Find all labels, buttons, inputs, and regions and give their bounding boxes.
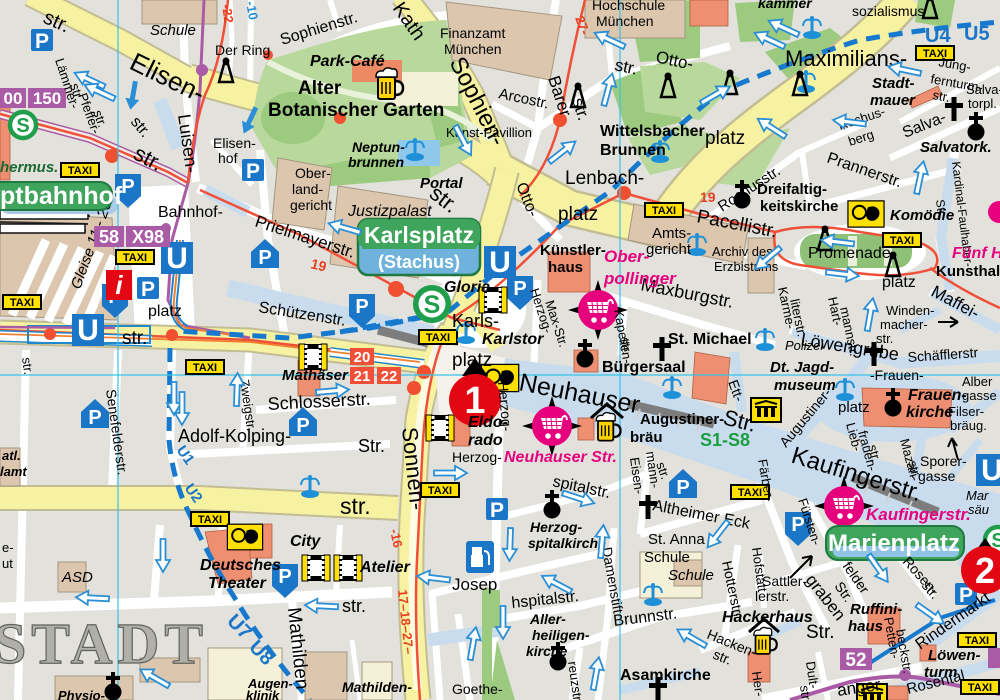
svg-text:München: München	[596, 13, 654, 29]
svg-text:Schule: Schule	[150, 22, 196, 39]
svg-text:atl.: atl.	[2, 448, 21, 463]
svg-text:00: 00	[4, 89, 23, 108]
svg-text:bräu: bräu	[630, 429, 663, 446]
svg-text:Wittelsbacher: Wittelsbacher	[600, 123, 705, 140]
svg-text:Dt. Jagd-: Dt. Jagd-	[770, 359, 834, 376]
svg-text:lamt: lamt	[0, 464, 27, 479]
svg-text:Finanzamt: Finanzamt	[440, 25, 505, 41]
svg-text:Polizei: Polizei	[785, 338, 824, 353]
svg-text:Ober-: Ober-	[604, 247, 650, 266]
svg-text:haus: haus	[548, 259, 583, 276]
svg-text:Mathilden-: Mathilden-	[342, 679, 412, 695]
svg-text:Der Ring: Der Ring	[215, 42, 270, 58]
svg-text:Salva-: Salva-	[966, 82, 1000, 97]
svg-text:Eldo-: Eldo-	[468, 414, 508, 431]
svg-text:str.: str.	[931, 87, 951, 105]
svg-text:gasse: gasse	[962, 388, 997, 403]
svg-text:2: 2	[975, 550, 995, 591]
svg-text:str.: str.	[876, 331, 893, 346]
svg-text:Archiv des: Archiv des	[712, 244, 773, 259]
svg-text:52: 52	[845, 650, 866, 671]
svg-text:Bahnhof-: Bahnhof-	[158, 204, 223, 221]
svg-text:str.: str.	[19, 356, 36, 375]
svg-text:ptbahnhof: ptbahnhof	[0, 182, 123, 210]
svg-text:brunnen: brunnen	[348, 154, 404, 170]
svg-text:macher-: macher-	[880, 317, 928, 332]
svg-text:Karls-: Karls-	[452, 311, 499, 331]
svg-text:str.: str.	[342, 596, 366, 616]
svg-text:Neuhauser Str.: Neuhauser Str.	[504, 449, 617, 466]
svg-text:e-: e-	[2, 540, 14, 555]
svg-text:Löwen-: Löwen-	[928, 647, 981, 664]
svg-text:Str.: Str.	[933, 199, 949, 219]
svg-text:rado: rado	[468, 432, 503, 449]
svg-text:torpl.: torpl.	[968, 96, 997, 111]
svg-text:Theater: Theater	[208, 575, 267, 592]
svg-text:Augustiner-: Augustiner-	[640, 411, 724, 428]
svg-text:sozialismus: sozialismus	[852, 3, 924, 19]
svg-text:-22: -22	[219, 3, 236, 24]
svg-text:Dreifaltig-: Dreifaltig-	[757, 181, 827, 198]
svg-text:Salvatork.: Salvatork.	[920, 139, 992, 156]
svg-text:Bürgersaal: Bürgersaal	[602, 359, 686, 376]
svg-text:heiligen-: heiligen-	[532, 627, 590, 643]
svg-text:22: 22	[381, 368, 398, 385]
svg-text:150: 150	[33, 89, 61, 108]
svg-text:Hochschule: Hochschule	[592, 0, 665, 13]
svg-text:20: 20	[354, 349, 371, 366]
svg-text:Frauen-: Frauen-	[908, 387, 967, 404]
svg-text:Alber: Alber	[962, 374, 993, 389]
svg-text:str.: str.	[340, 493, 371, 519]
svg-text:Josep: Josep	[452, 575, 497, 594]
svg-text:Karlsplatz: Karlsplatz	[364, 222, 474, 248]
svg-text:Marienplatz: Marienplatz	[828, 530, 960, 557]
svg-text:Winden-: Winden-	[886, 303, 934, 318]
svg-text:St. Michael: St. Michael	[668, 331, 752, 348]
svg-text:i: i	[115, 270, 123, 300]
svg-text:Filser-: Filser-	[948, 404, 984, 419]
svg-text:Atelier: Atelier	[359, 559, 411, 576]
svg-text:S1-S8: S1-S8	[700, 430, 750, 450]
svg-text:bräug.: bräug.	[950, 418, 987, 433]
svg-text:U5: U5	[964, 23, 990, 45]
svg-text:Deutsches: Deutsches	[200, 557, 281, 574]
svg-text:Kaufingerstr.: Kaufingerstr.	[866, 505, 971, 524]
svg-text:Mathäser: Mathäser	[282, 367, 349, 384]
svg-text:klinik: klinik	[246, 688, 280, 700]
svg-text:Str.: Str.	[806, 622, 835, 643]
svg-text:Aller-: Aller-	[529, 611, 566, 627]
svg-text:Ober-: Ober-	[295, 165, 331, 181]
svg-text:platz: platz	[705, 128, 745, 149]
svg-text:Promenade-: Promenade-	[808, 245, 896, 262]
svg-text:kirche: kirche	[526, 643, 567, 659]
svg-text:haus: haus	[848, 618, 883, 635]
svg-text:Amts-: Amts-	[652, 225, 691, 242]
svg-text:hof: hof	[218, 150, 238, 166]
svg-text:Herzog-: Herzog-	[452, 449, 502, 465]
svg-text:Lenbach-: Lenbach-	[565, 168, 644, 189]
svg-text:säu: säu	[968, 502, 989, 517]
svg-text:58: 58	[99, 227, 119, 247]
svg-text:spitalkirche: spitalkirche	[528, 535, 606, 551]
svg-text:platz: platz	[558, 204, 598, 225]
svg-text:Neptun-: Neptun-	[352, 139, 405, 155]
svg-text:museum: museum	[774, 377, 836, 394]
svg-text:Botanischer Garten: Botanischer Garten	[268, 100, 444, 121]
svg-text:Stadt-: Stadt-	[872, 75, 915, 92]
svg-text:St. Anna: St. Anna	[648, 531, 705, 548]
svg-text:Park-Café: Park-Café	[310, 53, 385, 70]
svg-text:gericht: gericht	[646, 241, 692, 258]
svg-text:Kunsthalle: Kunsthalle	[936, 263, 1000, 280]
svg-text:Sporer-: Sporer-	[920, 453, 967, 469]
svg-text:Mar: Mar	[966, 488, 989, 503]
svg-text:platz: platz	[838, 399, 870, 416]
svg-text:Asamkirche: Asamkirche	[620, 667, 711, 684]
svg-text:str.: str.	[617, 336, 635, 356]
svg-text:Schule: Schule	[668, 567, 714, 584]
svg-text:str.: str.	[122, 328, 147, 349]
svg-text:platz: platz	[452, 350, 492, 371]
svg-text:land-: land-	[292, 181, 323, 197]
svg-text:hermus.: hermus.	[0, 159, 58, 176]
svg-text:Fünf Hö: Fünf Hö	[952, 245, 1000, 262]
svg-text:Künstler-: Künstler-	[540, 242, 606, 259]
svg-text:str.: str.	[797, 684, 814, 700]
svg-text:München: München	[444, 41, 502, 57]
svg-text:Schule: Schule	[644, 549, 690, 566]
svg-text:pollinger: pollinger	[603, 269, 677, 288]
svg-text:ASD: ASD	[61, 569, 93, 586]
svg-text:ut: ut	[2, 556, 13, 571]
svg-text:STADT: STADT	[0, 611, 208, 676]
svg-text:City: City	[290, 533, 321, 550]
svg-text:platz: platz	[148, 303, 182, 320]
svg-text:(Stachus): (Stachus)	[378, 252, 460, 272]
svg-text:platz: platz	[882, 274, 916, 291]
svg-text:gericht: gericht	[290, 197, 332, 213]
svg-text:kammer: kammer	[758, 0, 813, 11]
svg-text:Brunnen: Brunnen	[600, 142, 666, 159]
svg-text:Elisen-: Elisen-	[213, 135, 256, 151]
svg-text:19: 19	[700, 189, 716, 205]
svg-text:U4: U4	[925, 25, 951, 47]
svg-text:-Frauen-: -Frauen-	[870, 367, 924, 383]
svg-text:Justizpalast: Justizpalast	[347, 203, 432, 220]
svg-text:keitskirche: keitskirche	[760, 198, 838, 215]
svg-text:21: 21	[354, 368, 371, 385]
svg-text:Karlstor: Karlstor	[482, 331, 544, 348]
svg-text:Str.: Str.	[358, 436, 385, 456]
svg-text:Herzog-: Herzog-	[530, 519, 582, 535]
svg-text:Adolf-Kolping-: Adolf-Kolping-	[178, 426, 291, 446]
svg-text:X98: X98	[132, 227, 164, 247]
svg-text:Goethe-: Goethe-	[452, 681, 503, 697]
svg-text:Alter: Alter	[298, 78, 342, 99]
svg-text:Gloria: Gloria	[444, 279, 490, 296]
svg-text:Physio-: Physio-	[58, 688, 105, 700]
svg-text:kirche: kirche	[906, 404, 953, 421]
svg-text:gasse: gasse	[918, 468, 956, 484]
svg-text:Hackerhaus: Hackerhaus	[722, 609, 813, 626]
